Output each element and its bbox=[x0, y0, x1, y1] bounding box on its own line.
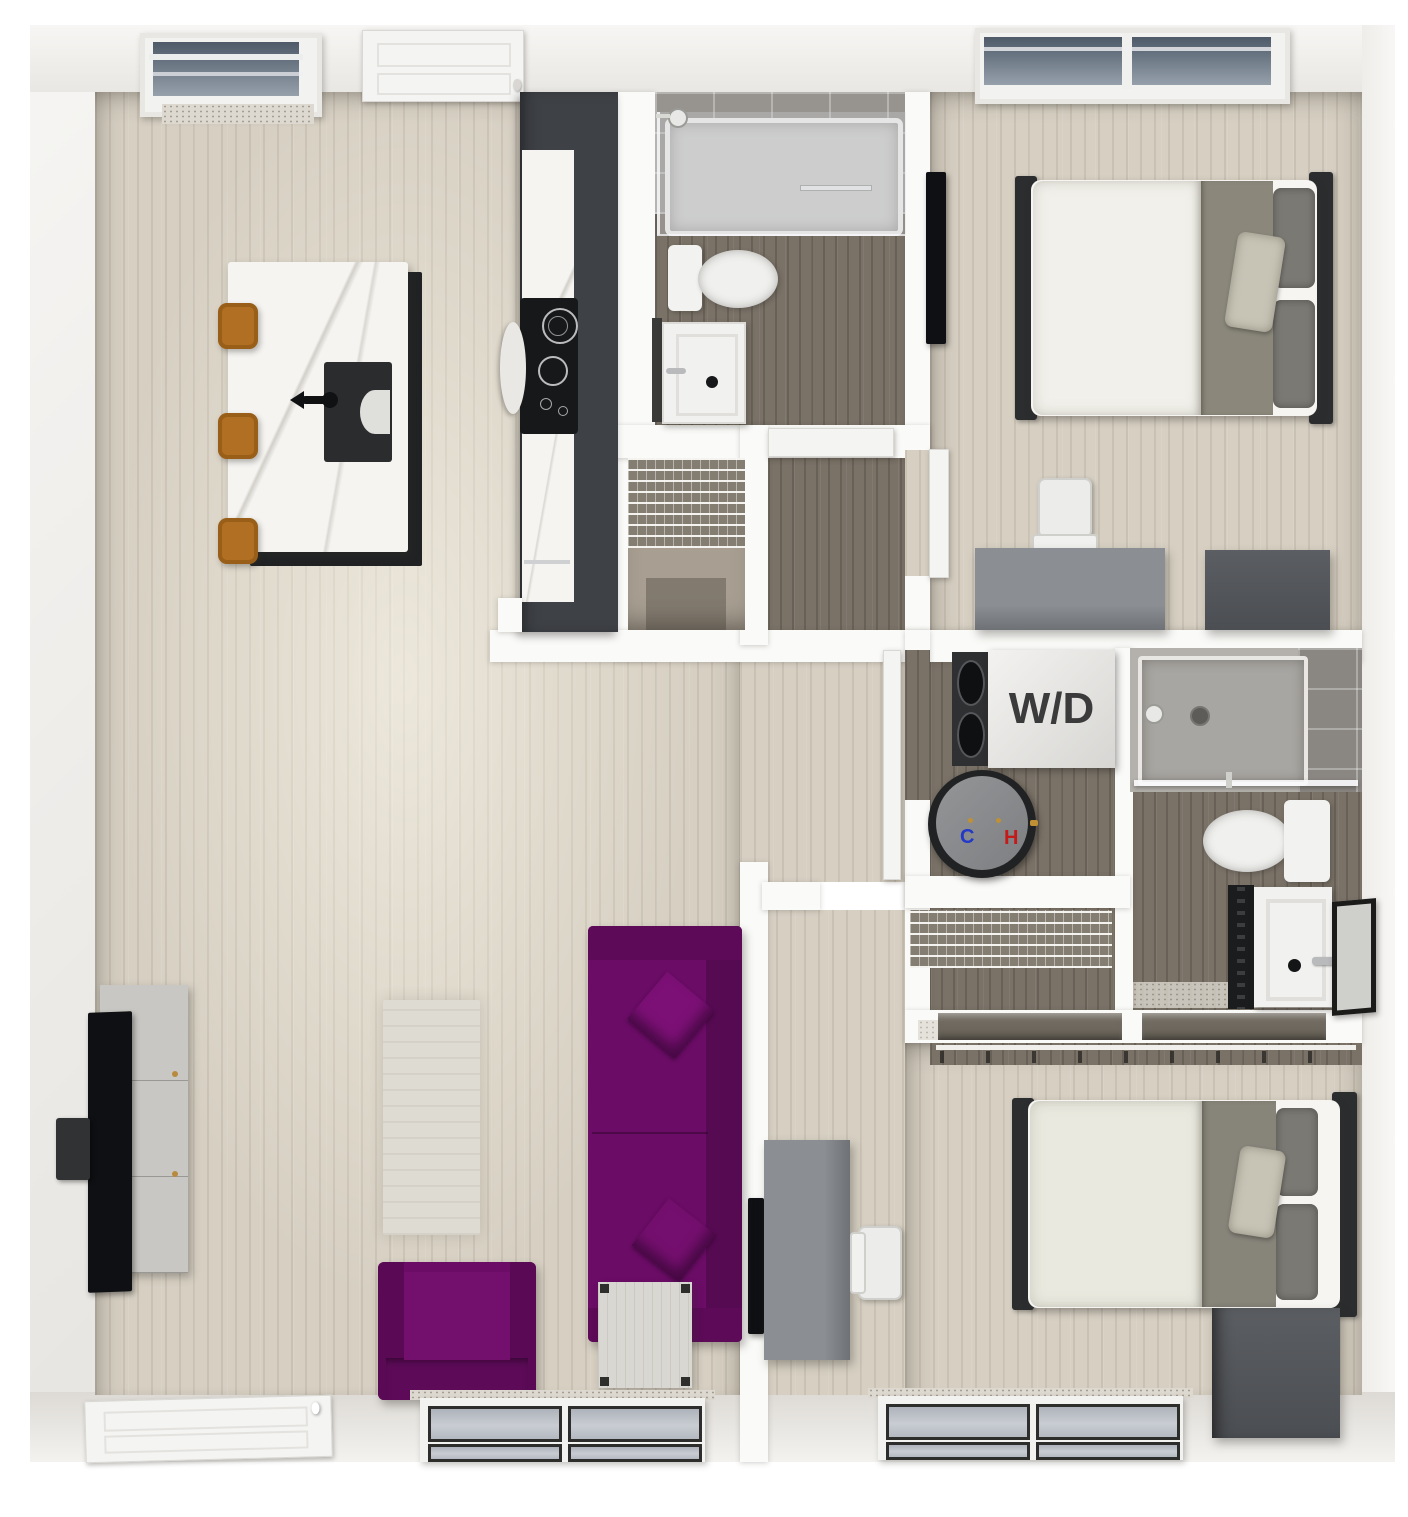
floor-hallway-opening bbox=[740, 645, 905, 882]
burner-ring bbox=[548, 316, 568, 336]
valve-fitting bbox=[1030, 820, 1038, 826]
bed-duvet bbox=[1030, 1101, 1202, 1307]
laundry-door-opening bbox=[905, 650, 930, 800]
window-pane bbox=[886, 1404, 1030, 1440]
window-pane bbox=[428, 1444, 562, 1462]
console-handle bbox=[172, 1071, 178, 1077]
wall-bedroom2-entry-stub bbox=[762, 882, 820, 910]
bedroom-1-door-opening bbox=[905, 450, 930, 576]
living-tv bbox=[88, 1011, 132, 1293]
bathroom-1-mirror bbox=[652, 318, 662, 422]
skylight-sill bbox=[162, 104, 314, 124]
cabinet-end-panel bbox=[498, 598, 522, 632]
bedroom-1-desk bbox=[975, 548, 1165, 630]
skylight-slat bbox=[151, 72, 303, 76]
table-leg bbox=[600, 1377, 609, 1386]
valve-fitting bbox=[968, 818, 973, 823]
door-panel-line bbox=[104, 1430, 308, 1453]
hot-valve-label: H bbox=[1004, 827, 1018, 850]
table-leg bbox=[681, 1377, 690, 1386]
shower-arm bbox=[656, 114, 670, 118]
door-knob bbox=[311, 1402, 319, 1414]
shower-head-icon bbox=[668, 108, 688, 128]
bedroom-2-closet-rod-band bbox=[930, 1043, 1362, 1065]
table-leg bbox=[600, 1284, 609, 1293]
pantry-wire-shelving bbox=[628, 458, 745, 548]
bedroom-1-window bbox=[975, 28, 1290, 104]
bathroom-1-vanity bbox=[662, 322, 746, 424]
bedroom-1-bed bbox=[1015, 172, 1333, 424]
side-table bbox=[598, 1282, 692, 1388]
closet-rod bbox=[936, 1045, 1356, 1050]
cold-valve-label: C bbox=[960, 826, 974, 849]
bedroom-1-dresser bbox=[1205, 550, 1330, 630]
armchair-seat bbox=[404, 1272, 510, 1360]
armchair bbox=[378, 1262, 536, 1400]
bed-pillow bbox=[1276, 1204, 1318, 1300]
table-leg bbox=[681, 1284, 690, 1293]
vanity-door-panel bbox=[676, 334, 738, 416]
bed-duvet bbox=[1033, 181, 1201, 415]
bedroom-2-tv bbox=[748, 1198, 764, 1334]
window-pane bbox=[568, 1406, 702, 1442]
skylight-glass bbox=[153, 42, 299, 96]
vanity-cabinet-side bbox=[1228, 885, 1254, 1009]
dishwasher-trim bbox=[524, 560, 570, 564]
bathroom-1-door bbox=[768, 428, 894, 457]
console-handle bbox=[172, 1171, 178, 1177]
washer-dryer-body: W/D bbox=[988, 650, 1115, 768]
top-entry-door bbox=[362, 30, 524, 102]
bar-stool bbox=[218, 413, 258, 459]
bed-pillow bbox=[1273, 300, 1315, 408]
water-heater-top bbox=[936, 776, 1028, 870]
sofa-seat-seam bbox=[592, 1132, 708, 1134]
washer-drum-icon bbox=[957, 660, 985, 706]
window-mullion bbox=[1122, 33, 1132, 89]
floor-vestibule bbox=[768, 458, 905, 645]
tv-mount-arm bbox=[56, 1118, 90, 1180]
laundry-closet-door bbox=[883, 650, 901, 880]
pantry-closet bbox=[628, 458, 745, 630]
living-rug bbox=[383, 1000, 480, 1235]
bedroom-2-desk-chair bbox=[850, 1218, 902, 1308]
floor-plan: W/D C H bbox=[0, 0, 1408, 1517]
bedroom-1-door bbox=[929, 449, 949, 578]
bathroom-2-shower bbox=[1130, 648, 1362, 792]
bathroom-1-shower-glass bbox=[657, 112, 906, 236]
burner-knob bbox=[558, 406, 568, 416]
entry-door bbox=[84, 1395, 333, 1463]
shower-drain-icon bbox=[1190, 706, 1210, 726]
linen-closet-shelving bbox=[910, 910, 1112, 968]
bathroom-2-toilet-bowl bbox=[1203, 810, 1291, 872]
bathroom-1-toilet-bowl bbox=[698, 250, 778, 308]
shower-head-icon bbox=[1144, 704, 1164, 724]
wall-exterior-right bbox=[1362, 25, 1395, 1462]
bathroom-1-toilet-tank bbox=[668, 245, 702, 311]
wall-exterior-left bbox=[30, 25, 95, 1462]
water-heater: C H bbox=[928, 770, 1036, 878]
door-knob bbox=[513, 79, 521, 91]
bathroom-2-toilet-tank bbox=[1284, 800, 1330, 882]
door-panel-line bbox=[377, 73, 511, 95]
bedroom-1-tv bbox=[926, 172, 946, 344]
bedroom-2-dresser bbox=[1212, 1308, 1340, 1438]
sofa-pillow bbox=[627, 971, 714, 1058]
washer-dryer-unit: W/D bbox=[952, 650, 1115, 768]
shower-door-handle bbox=[1226, 772, 1232, 788]
washer-drum-icon bbox=[957, 712, 985, 758]
washer-dryer-label: W/D bbox=[1009, 684, 1095, 734]
burner-knob bbox=[540, 398, 552, 410]
closet-hangers bbox=[940, 1051, 1352, 1063]
living-room-window bbox=[420, 1398, 705, 1464]
sofa bbox=[588, 926, 742, 1342]
bathroom-2-vanity bbox=[1228, 885, 1332, 1009]
sink-bowl bbox=[360, 390, 390, 434]
wall-laundry-bottom-shelf bbox=[905, 876, 1130, 908]
chair-seat bbox=[1038, 478, 1092, 538]
vanity-door-panel bbox=[1266, 899, 1326, 1001]
vanity-knob bbox=[1288, 959, 1301, 972]
bedroom-2-bed bbox=[1012, 1092, 1357, 1317]
oven-handle-arc bbox=[500, 322, 526, 414]
bathroom-2-mirror bbox=[1332, 898, 1376, 1016]
washer-drum-panel bbox=[952, 652, 988, 766]
window-pane bbox=[428, 1406, 562, 1442]
shower-pan bbox=[1138, 656, 1308, 786]
burner-ring bbox=[538, 356, 568, 386]
window-pane bbox=[568, 1444, 702, 1462]
bedroom-2-desk bbox=[764, 1140, 850, 1360]
shower-glass-edge bbox=[1134, 780, 1358, 786]
chair-back bbox=[850, 1232, 866, 1294]
pantry-floor-shadow bbox=[646, 578, 726, 630]
door-panel-line bbox=[104, 1406, 308, 1431]
island-faucet-icon bbox=[286, 380, 344, 420]
window-pane bbox=[886, 1442, 1030, 1460]
bedroom-2-window bbox=[878, 1396, 1183, 1462]
bar-stool bbox=[218, 303, 258, 349]
bedroom-2-closet-opening bbox=[1142, 1013, 1326, 1040]
door-panel-line bbox=[377, 43, 511, 67]
window-slat bbox=[984, 47, 1271, 51]
bedroom-1-desk-chair bbox=[1032, 472, 1094, 552]
vanity-front bbox=[1254, 887, 1332, 1007]
sofa-armrest bbox=[588, 926, 742, 960]
bedroom-2-closet-opening bbox=[938, 1013, 1122, 1040]
cooktop bbox=[520, 298, 578, 434]
vanity-sink-drain bbox=[706, 376, 718, 388]
sofa-backrest bbox=[706, 926, 742, 1342]
window-pane bbox=[1036, 1404, 1180, 1440]
window-pane bbox=[1036, 1442, 1180, 1460]
bar-stool bbox=[218, 518, 258, 564]
vanity-faucet bbox=[666, 368, 686, 374]
skylight-slat bbox=[149, 54, 303, 60]
sofa-pillow bbox=[632, 1198, 716, 1282]
valve-fitting bbox=[996, 818, 1001, 823]
